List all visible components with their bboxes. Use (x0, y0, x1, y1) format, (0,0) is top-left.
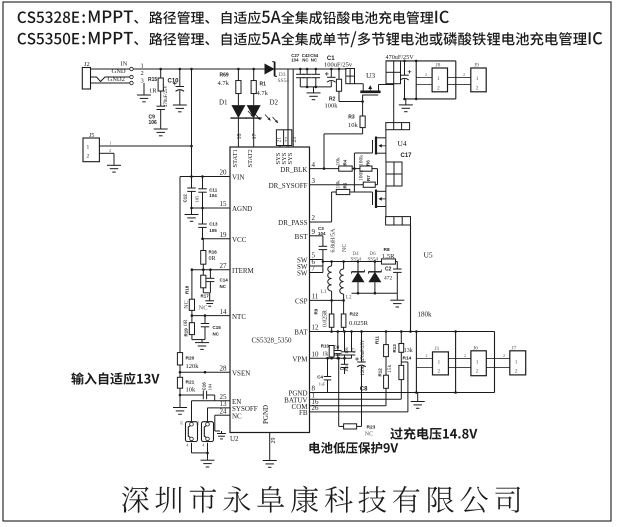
svg-text:180k: 180k (418, 311, 433, 319)
svg-text:C16: C16 (201, 382, 206, 391)
svg-text:1R: 1R (149, 88, 157, 95)
svg-text:10k: 10k (186, 387, 197, 394)
svg-text:C13: C13 (209, 222, 218, 227)
svg-text:21: 21 (277, 137, 283, 143)
svg-text:4.7k: 4.7k (257, 90, 269, 97)
svg-text:17: 17 (252, 134, 258, 140)
svg-text:U2: U2 (230, 435, 239, 443)
svg-text:CSP: CSP (295, 298, 308, 306)
svg-text:18: 18 (237, 134, 243, 140)
svg-text:C4: C4 (317, 375, 323, 380)
svg-text:23: 23 (292, 137, 298, 143)
svg-text:NC: NC (199, 305, 208, 312)
svg-text:6.8uH/5A: 6.8uH/5A (331, 228, 337, 253)
svg-text:105: 105 (209, 228, 217, 233)
svg-text:C11: C11 (209, 187, 218, 192)
svg-text:AGND: AGND (232, 205, 252, 213)
svg-text:R19: R19 (184, 328, 189, 337)
svg-text:C14: C14 (220, 278, 229, 283)
svg-text:U3: U3 (366, 71, 375, 80)
svg-text:NC: NC (365, 432, 373, 438)
svg-text:J3: J3 (179, 421, 184, 425)
svg-text:1uF: 1uF (318, 382, 326, 387)
svg-text:J7: J7 (512, 346, 517, 352)
svg-text:1: 1 (437, 76, 440, 82)
svg-text:105: 105 (344, 365, 349, 373)
svg-text:R16: R16 (209, 249, 218, 254)
svg-text:R4: R4 (343, 159, 348, 165)
svg-text:1: 1 (141, 62, 144, 69)
svg-text:15k: 15k (387, 365, 393, 374)
svg-text:R6: R6 (366, 160, 371, 166)
svg-text:7: 7 (312, 265, 316, 273)
svg-text:C2: C2 (385, 267, 392, 273)
svg-text:NC: NC (342, 244, 348, 252)
svg-text:D4: D4 (353, 252, 360, 257)
svg-text:12: 12 (312, 324, 320, 332)
svg-text:0.025R: 0.025R (349, 320, 369, 327)
svg-text:NC: NC (184, 300, 190, 308)
svg-text:NTC: NTC (232, 313, 246, 321)
svg-text:GND2: GND2 (108, 76, 125, 83)
svg-text:NC: NC (220, 284, 227, 289)
svg-text:1: 1 (87, 145, 90, 151)
svg-text:2: 2 (426, 353, 428, 358)
svg-text:J6: J6 (473, 346, 478, 352)
svg-text:3: 3 (141, 78, 144, 85)
svg-text:1: 1 (476, 360, 479, 366)
svg-text:27: 27 (220, 262, 228, 270)
svg-text:L1: L1 (321, 289, 327, 295)
svg-text:L2: L2 (346, 295, 352, 301)
svg-text:SS54: SS54 (351, 258, 362, 263)
svg-text:9: 9 (312, 228, 316, 236)
svg-text:U4: U4 (398, 139, 407, 148)
svg-text:2: 2 (463, 72, 465, 77)
svg-text:10k: 10k (348, 122, 359, 129)
svg-text:R14: R14 (403, 355, 412, 361)
svg-text:DR_BLK: DR_BLK (280, 166, 307, 174)
svg-text:IN: IN (121, 61, 128, 68)
svg-text:R9: R9 (314, 308, 319, 314)
svg-text:104: 104 (291, 58, 299, 63)
svg-text:J9: J9 (474, 63, 479, 69)
svg-text:4: 4 (312, 161, 316, 169)
svg-text:19: 19 (220, 231, 228, 239)
svg-text:20: 20 (220, 169, 228, 177)
svg-text:1.5R: 1.5R (382, 253, 395, 260)
svg-text:2: 2 (312, 214, 316, 222)
svg-text:470uF/25V: 470uF/25V (386, 54, 415, 61)
svg-text:J1: J1 (435, 346, 440, 352)
svg-text:VSEN: VSEN (232, 369, 250, 377)
svg-text:1: 1 (515, 360, 518, 366)
svg-text:SS54: SS54 (368, 258, 379, 263)
svg-text:R18: R18 (184, 285, 189, 294)
svg-text:STAT2: STAT2 (247, 149, 254, 167)
svg-text:R13: R13 (392, 344, 397, 353)
svg-text:28: 28 (220, 364, 228, 372)
svg-text:C12: C12 (183, 194, 188, 203)
svg-text:DR_SYSOFF: DR_SYSOFF (269, 182, 308, 190)
svg-text:2: 2 (141, 70, 144, 77)
svg-text:2: 2 (425, 72, 427, 77)
svg-text:C6: C6 (334, 345, 340, 350)
svg-text:4.7k: 4.7k (218, 80, 230, 87)
svg-text:PGND: PGND (262, 405, 270, 424)
svg-text:100k: 100k (359, 170, 365, 181)
svg-text:472: 472 (384, 276, 393, 282)
svg-text:R5: R5 (343, 182, 348, 188)
svg-text:R10: R10 (321, 344, 330, 349)
svg-text:104: 104 (318, 231, 326, 236)
svg-text:10k: 10k (336, 180, 342, 189)
svg-text:R1: R1 (260, 82, 267, 88)
svg-text:C7: C7 (351, 347, 356, 353)
svg-text:D1: D1 (219, 99, 228, 107)
svg-text:J5: J5 (89, 133, 94, 139)
svg-text:R12: R12 (377, 368, 382, 377)
svg-text:10: 10 (312, 350, 320, 358)
svg-text:1k: 1k (322, 352, 328, 358)
svg-text:BST: BST (295, 233, 309, 241)
svg-text:100k: 100k (325, 102, 339, 109)
svg-text:104: 104 (209, 193, 217, 198)
svg-text:NC: NC (213, 332, 220, 337)
svg-text:R20: R20 (186, 356, 195, 362)
svg-text:VPM: VPM (292, 355, 308, 363)
svg-text:0.025R: 0.025R (322, 310, 328, 327)
svg-text:R7: R7 (366, 175, 371, 181)
svg-text:2: 2 (438, 369, 441, 375)
svg-text:106: 106 (344, 347, 349, 355)
svg-text:CS5328_5350: CS5328_5350 (252, 337, 293, 345)
svg-text:R15: R15 (148, 77, 157, 83)
svg-text:2: 2 (109, 148, 111, 153)
svg-text:470uF/25V: 470uF/25V (164, 85, 169, 107)
svg-text:106: 106 (149, 120, 158, 126)
svg-text:15: 15 (220, 200, 228, 208)
svg-text:104: 104 (207, 383, 212, 391)
svg-text:R17: R17 (201, 294, 210, 299)
svg-text:2: 2 (515, 369, 518, 375)
svg-text:470uF/25V: 470uF/25V (361, 339, 366, 361)
svg-text:100uF/25v: 100uF/25v (324, 62, 353, 69)
svg-text:11: 11 (312, 293, 319, 301)
svg-text:2: 2 (503, 353, 505, 358)
svg-text:J2: J2 (84, 61, 90, 68)
svg-text:24: 24 (220, 407, 228, 415)
svg-text:22: 22 (284, 137, 290, 143)
svg-text:C10: C10 (168, 78, 180, 84)
svg-text:R23: R23 (367, 425, 376, 431)
svg-text:STAT1: STAT1 (232, 149, 239, 167)
svg-text:BAT: BAT (294, 329, 308, 337)
svg-text:10k: 10k (336, 157, 342, 166)
svg-text:2: 2 (476, 86, 479, 92)
svg-text:120k: 120k (361, 365, 366, 375)
svg-text:120k: 120k (186, 363, 200, 370)
svg-text:SW: SW (297, 270, 308, 278)
svg-text:D2: D2 (270, 99, 279, 107)
svg-text:0R: 0R (183, 319, 189, 326)
svg-text:105: 105 (194, 195, 199, 203)
svg-text:R21: R21 (186, 380, 195, 386)
svg-text:FB: FB (299, 409, 308, 417)
svg-text:3: 3 (312, 177, 316, 185)
svg-text:J8: J8 (436, 63, 441, 69)
svg-text:R22: R22 (350, 312, 359, 318)
svg-text:NC: NC (311, 58, 317, 63)
svg-text:1: 1 (476, 76, 479, 82)
svg-text:R11: R11 (374, 335, 379, 344)
svg-text:2: 2 (476, 369, 479, 375)
svg-text:13k: 13k (404, 348, 413, 354)
svg-text:C15: C15 (213, 325, 222, 330)
svg-text:104: 104 (333, 352, 341, 357)
svg-text:1: 1 (109, 141, 111, 146)
svg-text:1: 1 (438, 360, 441, 366)
svg-text:ITERM: ITERM (232, 267, 255, 275)
svg-text:100k: 100k (359, 155, 365, 166)
svg-text:2: 2 (437, 86, 440, 92)
svg-text:VIN: VIN (232, 174, 244, 182)
svg-text:2: 2 (464, 353, 466, 358)
svg-text:C17: C17 (401, 153, 413, 159)
svg-text:2: 2 (87, 154, 90, 160)
svg-text:14: 14 (220, 308, 228, 316)
svg-text:SYS: SYS (287, 152, 294, 164)
svg-text:DR_PASS: DR_PASS (278, 219, 307, 227)
svg-text:0R: 0R (209, 256, 216, 262)
svg-text:D6: D6 (370, 252, 377, 257)
svg-text:U5: U5 (424, 251, 433, 260)
svg-text:NC: NC (232, 412, 242, 420)
svg-text:GND: GND (112, 68, 126, 75)
svg-text:R3: R3 (348, 115, 355, 121)
svg-text:29: 29 (271, 438, 277, 444)
svg-text:NC: NC (302, 58, 308, 63)
svg-text:VCC: VCC (232, 236, 247, 244)
svg-text:R69: R69 (220, 73, 229, 79)
